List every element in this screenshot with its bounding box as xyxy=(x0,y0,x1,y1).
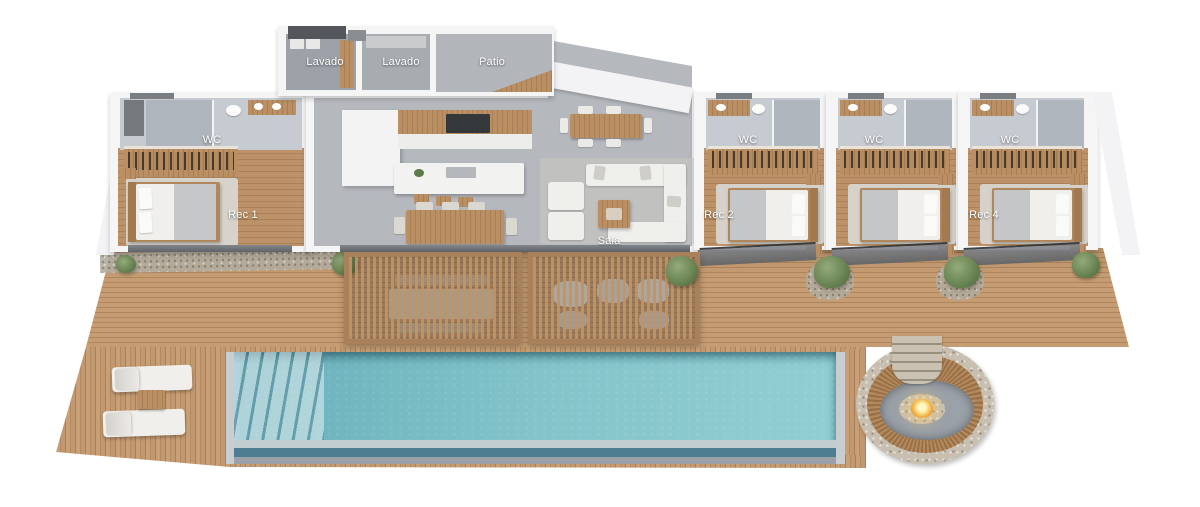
rec3-bed-headboard xyxy=(942,188,950,242)
rec1-bed-pillow xyxy=(138,188,152,210)
rec1-roof-vent xyxy=(130,93,174,99)
pool-water-ripple xyxy=(234,354,836,440)
shrub xyxy=(666,256,698,286)
dining-chair xyxy=(506,218,517,235)
rec4-vanity xyxy=(972,100,1014,116)
pergola-dining xyxy=(344,252,522,344)
rec2-nightstand xyxy=(806,174,822,185)
room-label-wc-rec2: WC xyxy=(739,134,758,146)
rec4-bed-blanket xyxy=(994,190,1030,240)
lounger-backrest xyxy=(106,412,132,435)
rec2-bed-blanket xyxy=(730,190,766,240)
room-label-lavado-1: Lavado xyxy=(306,56,343,68)
rec4-bed-pillow xyxy=(1055,194,1069,215)
breakfast-chair xyxy=(644,118,652,133)
kitchen-pantry-volume xyxy=(342,110,400,186)
shrub xyxy=(814,256,850,288)
rec2-closet-clothes xyxy=(712,151,814,168)
dining-chair xyxy=(394,217,405,234)
villa-floorplan-render: Lavado Lavado Patio WC Rec 1 WC Rec 2 WC… xyxy=(0,0,1200,507)
lavado2-counter xyxy=(366,36,426,48)
rooftop-unit xyxy=(288,26,346,39)
living-glass-wall xyxy=(340,245,690,252)
rec1-toilet xyxy=(226,105,241,116)
rec2-bed-headboard xyxy=(810,188,818,242)
rec4-nightstand xyxy=(1070,174,1086,185)
pool-bottom-ledge xyxy=(234,440,836,464)
shrub xyxy=(1072,252,1100,278)
sun-lounger xyxy=(112,365,193,393)
breakfast-chair xyxy=(606,139,621,147)
rec4-sink xyxy=(980,104,990,111)
room-label-rec2: Rec 2 xyxy=(704,209,734,221)
rec4-roof-vent xyxy=(980,93,1016,99)
room-label-sala: Sala xyxy=(598,235,621,247)
rec2-roof-vent xyxy=(716,93,752,99)
dining-table xyxy=(406,210,504,244)
rooftop-step xyxy=(348,30,366,41)
lounger-backrest xyxy=(115,368,140,390)
sofa-pillow xyxy=(639,165,651,180)
rec1-wc-cabinet xyxy=(124,100,144,136)
rec2-sink xyxy=(716,104,726,111)
rec2-toilet xyxy=(752,104,765,114)
shrub xyxy=(116,255,136,273)
rec2-shower xyxy=(772,100,820,148)
fire-pit xyxy=(856,344,994,464)
rec3-shower xyxy=(904,100,952,148)
armchair xyxy=(548,212,584,240)
room-label-rec4: Rec 4 xyxy=(969,209,999,221)
island-plant xyxy=(414,169,424,177)
side-table xyxy=(138,390,165,409)
sofa-pillow xyxy=(667,196,682,208)
rec1-bed-blanket xyxy=(174,184,216,240)
kitchen-counter xyxy=(398,134,532,149)
kitchen-cooktop xyxy=(446,114,490,133)
coffee-table-tray xyxy=(606,208,622,220)
room-label-rec1: Rec 1 xyxy=(228,209,258,221)
rec3-bed-blanket xyxy=(862,190,898,240)
fire-pit-steps xyxy=(892,336,942,384)
rec3-bed-pillow xyxy=(923,194,937,215)
rec3-sink xyxy=(848,104,858,111)
rec1-bed-pillow xyxy=(138,212,152,234)
rec4-toilet xyxy=(1016,104,1029,114)
rec1-window-glazing xyxy=(128,245,292,252)
breakfast-chair xyxy=(560,118,568,133)
room-label-wc-rec3: WC xyxy=(865,134,884,146)
washer xyxy=(290,38,304,49)
rec4-closet-clothes xyxy=(976,151,1078,168)
breakfast-chair xyxy=(578,106,593,114)
sun-lounger xyxy=(103,409,186,438)
rec4-bed-pillow xyxy=(1055,216,1069,237)
room-label-wc-rec4: WC xyxy=(1001,134,1020,146)
rec2-bed-pillow xyxy=(791,216,805,237)
breakfast-table xyxy=(570,114,642,138)
dryer xyxy=(306,38,320,49)
rec1-bed-headboard xyxy=(128,182,136,242)
sofa-pillow xyxy=(593,165,606,180)
armchair xyxy=(548,182,584,210)
pergola-roof-slats xyxy=(349,257,517,339)
pool-coping-right xyxy=(835,352,845,464)
rec1-closet-clothes xyxy=(128,152,234,170)
rec4-bed-headboard xyxy=(1074,188,1082,242)
rec4-shower xyxy=(1036,100,1084,148)
rec3-toilet xyxy=(884,104,897,114)
rec1-nightstand xyxy=(121,168,136,179)
rec2-bed-pillow xyxy=(791,194,805,215)
room-label-patio: Patio xyxy=(479,56,505,68)
island-sink xyxy=(446,167,476,178)
room-label-lavado-2: Lavado xyxy=(382,56,419,68)
rec1-sink xyxy=(254,103,263,110)
breakfast-chair xyxy=(606,106,621,114)
fire-flame xyxy=(911,399,933,418)
rec3-nightstand xyxy=(938,174,954,185)
rec1-sink xyxy=(272,103,281,110)
exterior-wall-east xyxy=(1092,92,1140,255)
room-label-wc-rec1: WC xyxy=(203,134,222,146)
breakfast-chair xyxy=(578,139,593,147)
rec3-bed-pillow xyxy=(923,216,937,237)
rec2-vanity xyxy=(708,100,750,116)
shrub xyxy=(944,256,980,288)
rec3-vanity xyxy=(840,100,882,116)
rec3-roof-vent xyxy=(848,93,884,99)
rec3-closet-clothes xyxy=(844,151,946,168)
